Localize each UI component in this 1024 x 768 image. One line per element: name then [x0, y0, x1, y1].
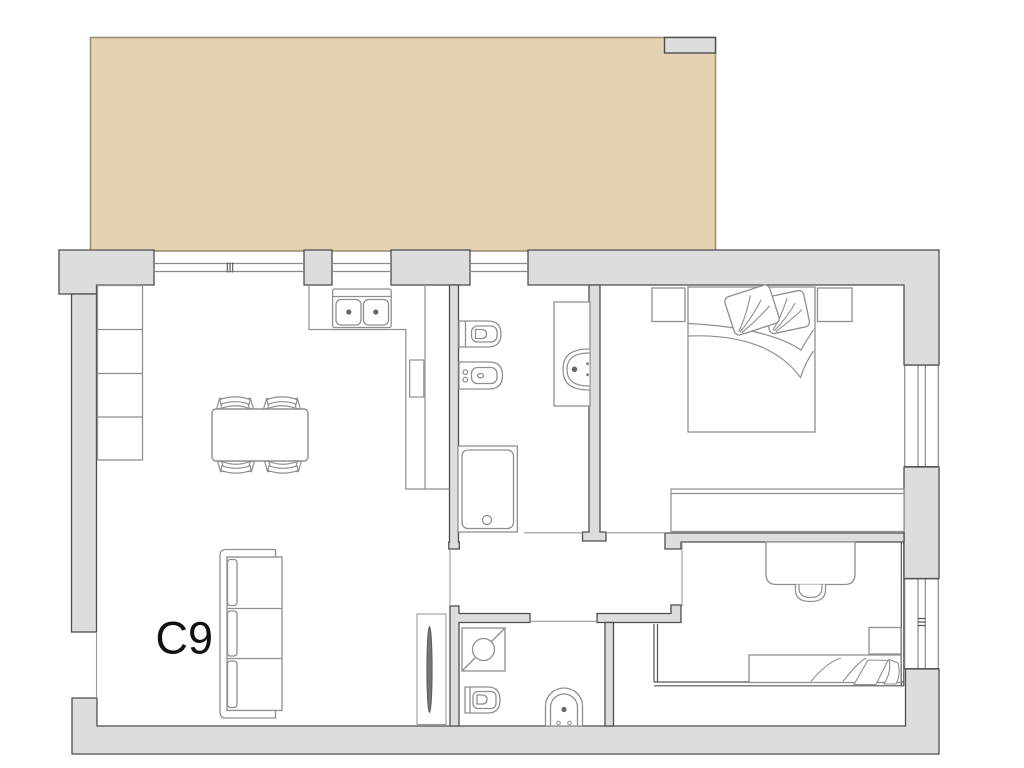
svg-text:C9: C9 [156, 613, 214, 664]
